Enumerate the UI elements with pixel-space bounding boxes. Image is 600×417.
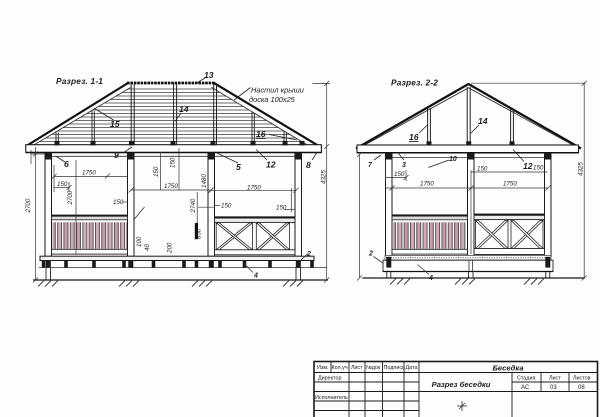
svg-text:3: 3 <box>402 162 406 169</box>
svg-text:16: 16 <box>409 132 419 142</box>
svg-text:2: 2 <box>306 251 311 258</box>
svg-text:14: 14 <box>179 104 189 114</box>
svg-text:2700: 2700 <box>25 198 32 213</box>
svg-text:10: 10 <box>449 156 457 163</box>
svg-text:2: 2 <box>368 251 373 258</box>
svg-text:150: 150 <box>153 166 160 177</box>
svg-text:Лист: Лист <box>351 365 363 371</box>
svg-text:150: 150 <box>394 171 405 178</box>
svg-text:100: 100 <box>136 236 143 247</box>
svg-text:6: 6 <box>64 159 69 169</box>
svg-text:03: 03 <box>550 385 557 391</box>
svg-text:Исполнитель: Исполнитель <box>315 395 348 401</box>
svg-text:Разрез. 2-2: Разрез. 2-2 <box>391 77 438 87</box>
svg-text:1480: 1480 <box>201 174 208 188</box>
svg-text:150: 150 <box>221 203 232 210</box>
svg-text:1750: 1750 <box>82 170 96 177</box>
svg-text:15: 15 <box>110 119 120 129</box>
svg-text:13: 13 <box>204 70 214 80</box>
svg-text:АС: АС <box>521 385 530 391</box>
svg-text:4325: 4325 <box>578 162 585 176</box>
svg-text:1750: 1750 <box>164 183 178 190</box>
svg-text:5: 5 <box>236 162 241 172</box>
svg-text:Стадия: Стадия <box>517 376 535 382</box>
svg-text:Разрез. 1-1: Разрез. 1-1 <box>56 76 103 86</box>
svg-text:№док: №док <box>366 365 381 371</box>
svg-text:4325: 4325 <box>321 170 328 184</box>
svg-text:Листов: Листов <box>573 376 591 382</box>
svg-text:1750: 1750 <box>503 181 517 188</box>
svg-text:16: 16 <box>256 129 266 139</box>
svg-text:12: 12 <box>266 160 276 170</box>
svg-text:Лист: Лист <box>549 376 561 382</box>
svg-text:150: 150 <box>533 165 544 172</box>
svg-text:Кол.уч: Кол.уч <box>332 365 348 371</box>
svg-text:доска 100х25: доска 100х25 <box>249 95 296 104</box>
svg-text:8: 8 <box>306 160 311 170</box>
svg-text:4: 4 <box>428 275 433 282</box>
svg-text:150: 150 <box>170 157 177 168</box>
svg-text:150: 150 <box>477 166 488 173</box>
svg-text:Подпись: Подпись <box>384 365 406 371</box>
svg-text:2740: 2740 <box>190 198 197 213</box>
svg-text:150: 150 <box>57 181 68 188</box>
svg-text:4: 4 <box>253 273 258 280</box>
svg-text:Настил крыши: Настил крыши <box>251 86 304 95</box>
svg-text:150: 150 <box>276 205 287 212</box>
svg-text:Директор: Директор <box>318 376 341 382</box>
svg-text:14: 14 <box>478 116 488 126</box>
svg-text:08: 08 <box>578 385 585 391</box>
svg-text:200: 200 <box>167 242 174 254</box>
svg-text:2700: 2700 <box>67 190 74 205</box>
svg-text:Дата: Дата <box>406 365 418 371</box>
svg-text:Беседка: Беседка <box>492 364 523 373</box>
svg-text:9: 9 <box>114 150 119 160</box>
svg-text:Разрез беседки: Разрез беседки <box>432 380 491 389</box>
svg-text:12: 12 <box>523 161 533 171</box>
svg-text:1750: 1750 <box>247 185 261 192</box>
svg-text:40: 40 <box>144 244 151 251</box>
svg-text:Изм.: Изм. <box>317 365 329 371</box>
svg-text:1750: 1750 <box>420 181 434 188</box>
